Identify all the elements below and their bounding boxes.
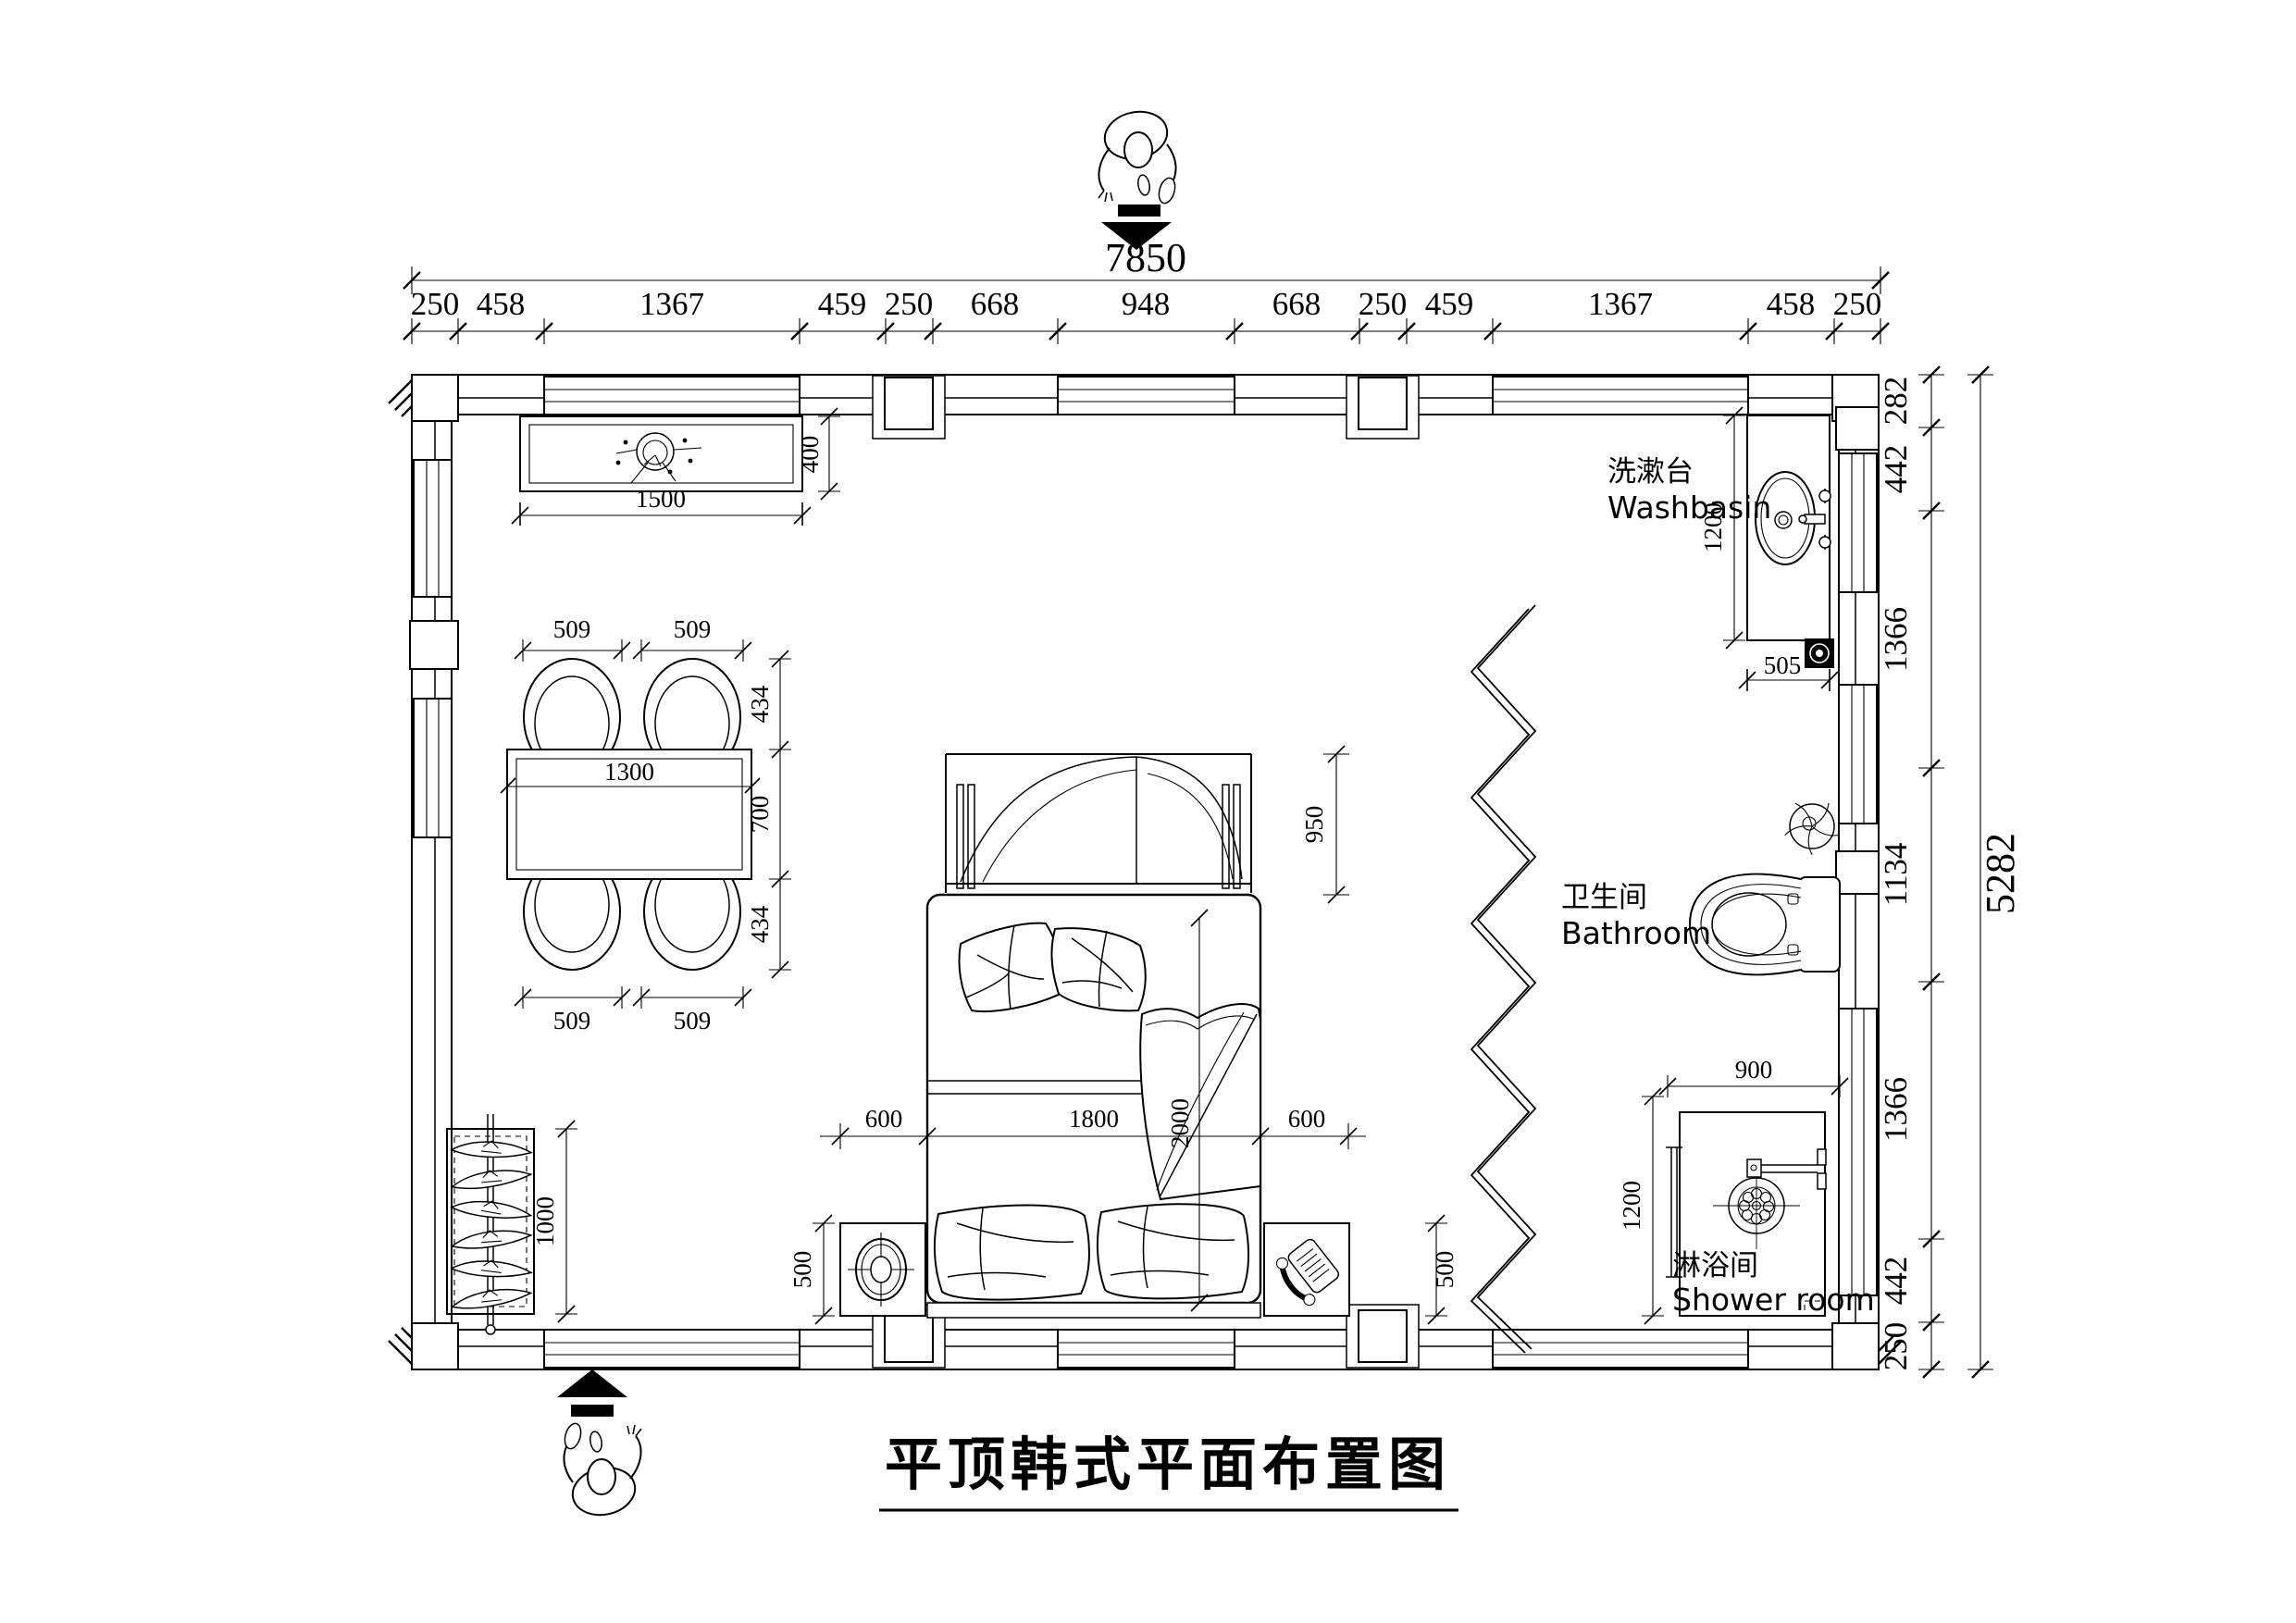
dim-top-10: 1367: [1588, 286, 1653, 322]
dim-shower-depth: 1200: [1618, 1181, 1645, 1231]
dim-overall-height: 5282: [1978, 833, 2023, 914]
dim-right-2: 1366: [1878, 607, 1914, 672]
entry-bottom: [557, 1369, 641, 1520]
dim-washbasin-width: 505: [1764, 651, 1802, 679]
exhaust-fan-icon: [1785, 803, 1840, 855]
entry-arrow-bottom-icon: [557, 1369, 627, 1397]
dim-chair-d-top: 434: [746, 685, 774, 723]
bed-blanket: [1140, 1004, 1260, 1199]
dim-table-width: 1300: [604, 758, 654, 786]
floor-plan-drawing: 7850 250 458 1367 459 250 668 948 668 25…: [0, 0, 2296, 1623]
hangers: [451, 1137, 532, 1310]
washbasin-label-zh: 洗漱台: [1607, 455, 1694, 489]
dim-wardrobe: 1000: [531, 1196, 559, 1246]
dim-top-12: 250: [1833, 286, 1882, 322]
person-top-icon: [1098, 106, 1178, 205]
dim-bed-length: 2000: [1166, 1098, 1194, 1148]
dim-top-11: 458: [1767, 286, 1816, 322]
dim-top-2: 1367: [639, 286, 704, 322]
dim-bed-canopy: 950: [1300, 806, 1328, 844]
washbasin-label-en: Washbasin: [1607, 489, 1771, 526]
dim-top-9: 459: [1425, 286, 1474, 322]
dim-nightstand-left: 500: [788, 1251, 816, 1289]
toilet: 卫生间 Bathroom: [1561, 803, 1840, 974]
dim-top-0: 250: [411, 286, 460, 322]
wardrobe-rack: 1000: [447, 1114, 577, 1334]
floor-plan-page: 7850 250 458 1367 459 250 668 948 668 25…: [0, 0, 2296, 1623]
dim-nightstand-right: 500: [1431, 1251, 1458, 1289]
folding-partition: [1471, 605, 1535, 1353]
entry-top: [1098, 106, 1178, 250]
washbasin-counter: 1200 505 洗漱台 Washbasin: [1607, 407, 1838, 691]
dim-chair-d-bottom: 434: [746, 905, 774, 943]
dim-top-4: 250: [885, 286, 934, 322]
person-bottom-icon: [562, 1421, 641, 1520]
dim-tv-depth: 400: [796, 436, 824, 474]
dim-top-7: 668: [1272, 286, 1322, 322]
dim-top-1: 458: [477, 286, 526, 322]
bed-canopy: [946, 754, 1251, 895]
shower-room: 900 1200 淋浴间 Shower room: [1618, 1056, 1875, 1324]
dim-bed-side-right: 600: [1288, 1105, 1326, 1133]
dim-right-6: 250: [1878, 1322, 1914, 1371]
shower-label-en: Shower room: [1672, 1282, 1875, 1318]
dim-bed-side-left: 600: [865, 1105, 903, 1133]
nightstand-left: 500: [788, 1215, 925, 1324]
bed-base: [927, 1303, 1260, 1318]
dim-right-1: 442: [1878, 445, 1914, 494]
dim-right-4: 1366: [1878, 1077, 1914, 1142]
bathroom-label-zh: 卫生间: [1561, 881, 1647, 914]
dim-chair-w-br: 509: [674, 1007, 712, 1035]
floor-drain-icon: [1805, 638, 1834, 668]
title-text: 平顶韩式平面布置图: [885, 1431, 1451, 1498]
bathroom-label-en: Bathroom: [1561, 915, 1711, 951]
shower-label-zh: 淋浴间: [1672, 1249, 1758, 1282]
dim-right-5: 442: [1878, 1257, 1914, 1306]
dining-table: 1300: [501, 750, 760, 879]
dim-top-6: 948: [1122, 286, 1171, 322]
dining-set: 1300 509 509 509 509 434 700 434: [501, 615, 791, 1035]
dim-table-depth: 700: [746, 796, 774, 834]
dim-chair-w-bl: 509: [553, 1007, 591, 1035]
dim-chair-w-tl: 509: [553, 615, 591, 643]
drawing-title: 平顶韩式平面布置图: [879, 1431, 1458, 1510]
entry-arrow-top-bar: [1118, 204, 1160, 217]
dim-right-0: 282: [1878, 377, 1914, 426]
dim-top-5: 668: [971, 286, 1020, 322]
dim-top-3: 459: [818, 286, 867, 322]
plant-icon: [616, 433, 701, 483]
dim-right-3: 1134: [1878, 843, 1914, 907]
dim-chair-w-tr: 509: [674, 615, 712, 643]
dim-top-8: 250: [1359, 286, 1408, 322]
entry-arrow-bottom-bar: [571, 1405, 614, 1417]
right-dimension-chain: 5282 282 442 1366 1134 1366 442 250: [1878, 366, 2023, 1378]
top-dimension-chain: 7850 250 458 1367 459 250 668 948 668 25…: [403, 235, 1889, 344]
shower-head-icon: [1747, 1149, 1826, 1189]
bed-head-pillows: [960, 923, 1146, 1011]
dim-shower-width: 900: [1735, 1056, 1773, 1084]
dim-tv-width: 1500: [636, 485, 686, 513]
dim-bed-width: 1800: [1069, 1105, 1119, 1133]
bed-foot-pillows: [935, 1204, 1248, 1299]
tv-console: 1500 400: [512, 408, 840, 526]
